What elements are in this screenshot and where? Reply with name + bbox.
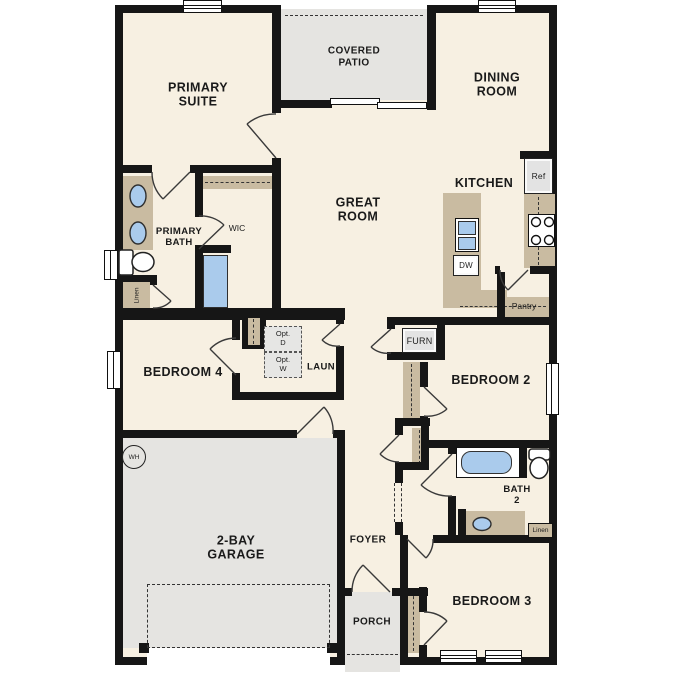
door-swing bbox=[407, 539, 433, 558]
toilet-bowl bbox=[530, 458, 548, 479]
door-swing bbox=[322, 324, 340, 346]
sink-basin bbox=[130, 185, 146, 207]
door-swing bbox=[352, 565, 390, 592]
room-label-garage: 2-BAY GARAGE bbox=[207, 534, 264, 563]
door-swing bbox=[421, 454, 452, 496]
stove-burners bbox=[532, 218, 554, 245]
door-swing bbox=[153, 285, 171, 308]
room-label-great-room: GREAT ROOM bbox=[336, 196, 381, 225]
sink-basin bbox=[473, 518, 491, 531]
room-label-wic: WIC bbox=[229, 224, 246, 234]
door-swing bbox=[247, 114, 276, 158]
door-swing bbox=[152, 172, 190, 199]
room-label-foyer: FOYER bbox=[350, 534, 386, 546]
sink-basin bbox=[130, 222, 146, 244]
toilet-bowl bbox=[132, 253, 154, 272]
door-swing bbox=[371, 329, 391, 353]
room-label-bedroom-4: BEDROOM 4 bbox=[143, 365, 222, 379]
floor-plan: Ref DW FURN Opt. D Opt. W WH Linen Linen bbox=[0, 0, 687, 687]
room-label-bedroom-3: BEDROOM 3 bbox=[452, 594, 531, 608]
door-swing bbox=[297, 407, 333, 434]
label-pantry: Pantry bbox=[512, 302, 537, 312]
room-label-primary-bath: PRIMARY BATH bbox=[156, 227, 202, 249]
door-swing bbox=[500, 270, 528, 290]
toilet-tank bbox=[119, 250, 133, 275]
door-swing bbox=[199, 216, 224, 249]
room-label-covered-patio: COVERED PATIO bbox=[328, 46, 380, 69]
room-label-bath-2: BATH 2 bbox=[503, 485, 530, 507]
room-label-porch: PORCH bbox=[353, 616, 391, 628]
door-swing bbox=[424, 612, 447, 645]
room-label-dining-room: DINING ROOM bbox=[474, 71, 520, 100]
room-label-bedroom-2: BEDROOM 2 bbox=[451, 373, 530, 387]
door-swing bbox=[380, 435, 399, 462]
room-label-primary-suite: PRIMARY SUITE bbox=[168, 81, 228, 110]
symbols-overlay bbox=[0, 0, 687, 687]
room-label-kitchen: KITCHEN bbox=[455, 176, 513, 190]
door-swing bbox=[424, 387, 447, 416]
room-label-laundry: LAUN bbox=[307, 363, 335, 374]
